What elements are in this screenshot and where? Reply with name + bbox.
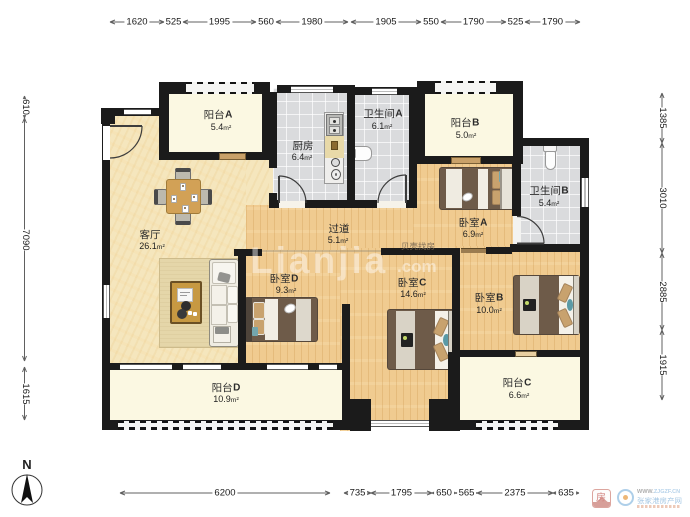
svg-text:N: N <box>22 457 31 472</box>
